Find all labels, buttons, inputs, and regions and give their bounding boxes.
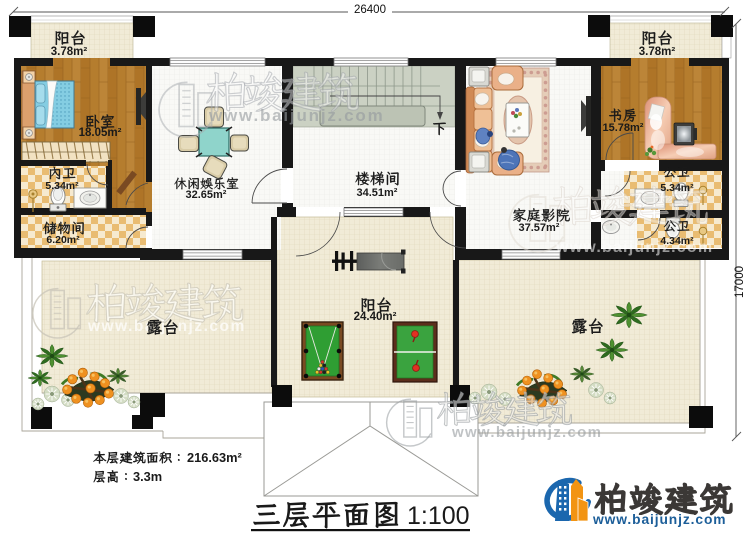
svg-text:3.3m: 3.3m bbox=[133, 469, 162, 484]
svg-text:3.78m²: 3.78m² bbox=[51, 46, 88, 58]
svg-text:www.baijunjz.com: www.baijunjz.com bbox=[592, 512, 726, 527]
svg-text:5.34m²: 5.34m² bbox=[660, 182, 694, 194]
svg-text:6.20m²: 6.20m² bbox=[46, 234, 80, 246]
svg-text:5.34m²: 5.34m² bbox=[45, 180, 79, 192]
svg-text:34.51m²: 34.51m² bbox=[357, 187, 398, 199]
svg-text:17000: 17000 bbox=[734, 266, 746, 298]
svg-text:www.baijunjz.com: www.baijunjz.com bbox=[451, 424, 602, 441]
svg-text:32.65m²: 32.65m² bbox=[186, 189, 227, 201]
svg-text:24.40m²: 24.40m² bbox=[354, 311, 397, 323]
svg-text:18.05m²: 18.05m² bbox=[79, 127, 122, 139]
svg-text:www.baijunjz.com: www.baijunjz.com bbox=[208, 106, 385, 125]
svg-text:1:100: 1:100 bbox=[407, 502, 470, 530]
svg-text:26400: 26400 bbox=[354, 4, 386, 16]
svg-text:3.78m²: 3.78m² bbox=[639, 46, 676, 58]
svg-text:4.34m²: 4.34m² bbox=[660, 235, 694, 247]
svg-text:15.78m²: 15.78m² bbox=[603, 122, 644, 134]
svg-text:216.63m²: 216.63m² bbox=[187, 450, 242, 465]
svg-text:37.57m²: 37.57m² bbox=[519, 222, 560, 234]
